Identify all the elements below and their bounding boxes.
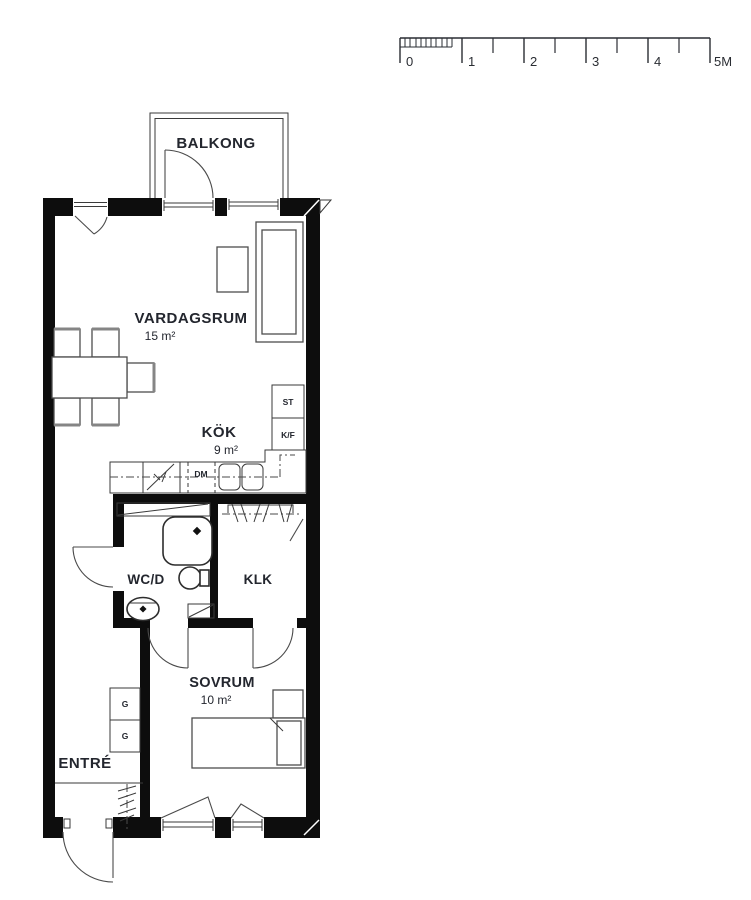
room-label-vardagsrum: VARDAGSRUM — [134, 310, 247, 327]
wardrobe-label-2: G — [122, 731, 129, 741]
tall-cabinets: ST K/F — [272, 385, 304, 450]
scale-tick-3: 3 — [592, 54, 599, 69]
wcd-door — [73, 547, 113, 587]
balcony-door — [165, 150, 213, 198]
klk-door — [253, 628, 293, 668]
room-wcd: WC/D — [73, 503, 214, 621]
room-kok: KÖK 9 m² DM ST K/F — [110, 385, 306, 493]
klk-corner-mark — [290, 519, 303, 541]
sliding-door — [117, 503, 210, 516]
room-label-wcd: WC/D — [127, 572, 164, 587]
scale-tick-0: 0 — [406, 54, 413, 69]
scale-tick-2: 2 — [530, 54, 537, 69]
toilet-icon — [179, 567, 209, 589]
floor-plan-drawing: 0 1 2 3 4 5M BALKONG — [0, 0, 751, 900]
nightstand — [273, 690, 303, 718]
pantry-label: ST — [283, 397, 295, 407]
scale-tick-1: 1 — [468, 54, 475, 69]
room-area-kok: 9 m² — [214, 443, 238, 457]
room-label-kok: KÖK — [202, 424, 237, 441]
room-balkong: BALKONG — [150, 113, 288, 198]
room-area-vardagsrum: 15 m² — [145, 329, 176, 343]
room-vardagsrum: VARDAGSRUM 15 m² — [52, 222, 303, 425]
floor-plan-page: 0 1 2 3 4 5M BALKONG — [0, 0, 751, 900]
dishwasher-label: DM — [194, 469, 207, 479]
scale-bar: 0 1 2 3 4 5M — [400, 38, 732, 69]
sofa — [256, 222, 303, 342]
room-sovrum: SOVRUM 10 m² — [148, 628, 305, 831]
room-entre: ENTRÉ G G — [55, 688, 143, 882]
bed — [192, 718, 305, 768]
wardrobes: G G — [110, 688, 140, 752]
scale-tick-4: 4 — [654, 54, 661, 69]
clothes-rail — [222, 504, 301, 522]
room-label-klk: KLK — [244, 572, 273, 587]
fridge-freezer-label: K/F — [281, 430, 295, 440]
shower-icon — [163, 517, 212, 565]
scale-tick-5m: 5M — [714, 54, 732, 69]
room-label-sovrum: SOVRUM — [189, 675, 254, 691]
dining-table — [52, 357, 127, 398]
room-klk: KLK — [222, 504, 303, 668]
room-label-entre: ENTRÉ — [58, 755, 111, 772]
washbasin-icon — [127, 598, 159, 621]
side-table — [217, 247, 248, 292]
wardrobe-label-1: G — [122, 699, 129, 709]
room-label-balkong: BALKONG — [176, 135, 255, 152]
kitchen-counter: DM — [110, 450, 306, 493]
room-area-sovrum: 10 m² — [201, 693, 232, 707]
dining-set — [52, 329, 154, 425]
sovrum-door — [148, 628, 188, 668]
